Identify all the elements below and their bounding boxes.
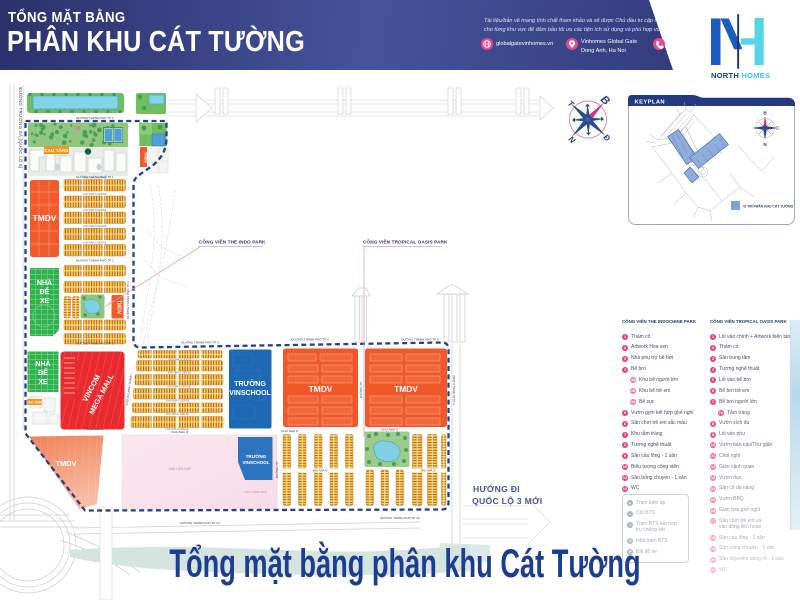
svg-text:ĐƯỜNG THÀNH PHỐ TP 2: ĐƯỜNG THÀNH PHỐ TP 2 (76, 258, 114, 263)
svg-text:TRƯỜNG: TRƯỜNG (234, 379, 266, 388)
svg-text:TMDV: TMDV (394, 384, 418, 394)
svg-text:ĐƯỜNG THÀNH PHỐ TP 2: ĐƯỜNG THÀNH PHỐ TP 2 (76, 341, 114, 346)
svg-text:TMDV: TMDV (56, 459, 77, 468)
svg-text:TMDV: TMDV (116, 300, 122, 315)
svg-text:PHỐ CƯ KINH THÀNH: PHỐ CƯ KINH THÀNH (124, 374, 133, 406)
svg-text:ĐƯỜNG THÀNH PHỐ TP 10: ĐƯỜNG THÀNH PHỐ TP 10 (381, 515, 420, 520)
svg-text:ĐƯỜNG THÀNH PHỐ TP 4: ĐƯỜNG THÀNH PHỐ TP 4 (401, 337, 439, 342)
svg-text:ĐƯỜNG THÀNH PHỐ TP 10: ĐƯỜNG THÀNH PHỐ TP 10 (181, 520, 220, 525)
svg-text:CÔNG VIÊN TROPICAL OASIS PARK: CÔNG VIÊN TROPICAL OASIS PARK (363, 238, 448, 245)
svg-text:KHU NHÀ Ở: KHU NHÀ Ở (172, 429, 189, 434)
svg-text:TMDV: TMDV (144, 152, 149, 164)
svg-text:TMDV: TMDV (33, 213, 57, 223)
svg-text:KHU NHA O LIEN KE: KHU NHA O LIEN KE (168, 386, 191, 389)
svg-text:KHU NHA O LIEN KE: KHU NHA O LIEN KE (168, 372, 191, 375)
svg-text:CÔNG VIÊN THE INDO PARK: CÔNG VIÊN THE INDO PARK (199, 238, 266, 245)
svg-text:KHU NHA O LIEN KE: KHU NHA O LIEN KE (84, 241, 107, 244)
svg-text:NORTH HOMES: NORTH HOMES (711, 71, 770, 80)
svg-text:N: N (566, 135, 577, 146)
svg-text:ĐƯỜNG THÀNH PHỐ TP 1: ĐƯỜNG THÀNH PHỐ TP 1 (76, 115, 114, 120)
svg-text:KHU NHÀ Ở: KHU NHÀ Ở (282, 428, 299, 433)
svg-text:VINSCHOOL: VINSCHOOL (229, 390, 271, 397)
svg-text:NHÀ: NHÀ (37, 278, 52, 287)
svg-text:CAO TẦNG: CAO TẦNG (26, 401, 44, 405)
svg-text:QUỐC LỘ 3 MỚI: QUỐC LỘ 3 MỚI (472, 495, 542, 506)
svg-text:Y LÊ ĐƯỜNG THÀNH: Y LÊ ĐƯỜNG THÀNH (451, 375, 456, 405)
svg-text:KHU NHÀ Ở: KHU NHÀ Ở (382, 427, 399, 432)
svg-text:ĐỂ: ĐỂ (38, 368, 48, 377)
svg-text:KHU NHA O LIEN KE: KHU NHA O LIEN KE (166, 413, 189, 416)
svg-text:KHU NHÀ Ở: KHU NHÀ Ở (87, 426, 104, 431)
svg-text:KHU NHA O LIEN KE: KHU NHA O LIEN KE (84, 193, 107, 196)
svg-text:KHU NHA O LIEN KE: KHU NHA O LIEN KE (167, 400, 190, 403)
svg-text:ĐƯỜNG TP: ĐƯỜNG TP (274, 462, 279, 478)
svg-text:KHU HỖN HỢP: KHU HỖN HỢP (169, 466, 192, 471)
svg-text:XE: XE (38, 379, 48, 386)
svg-text:ĐƯỜNG THÀNH PHỐ TP 1: ĐƯỜNG THÀNH PHỐ TP 1 (76, 174, 114, 179)
svg-text:ĐƯỜNG THÀNH PHỐ TP 4: ĐƯỜNG THÀNH PHỐ TP 4 (291, 337, 329, 342)
svg-text:KHU NHA O LIEN KE: KHU NHA O LIEN KE (84, 209, 107, 212)
svg-text:TMDV: TMDV (309, 384, 333, 394)
svg-text:NHÀ: NHÀ (35, 359, 50, 368)
svg-text:Đ: Đ (601, 133, 612, 144)
svg-text:ĐỂ: ĐỂ (40, 287, 50, 296)
svg-text:KEYPLAN: KEYPLAN (635, 99, 666, 105)
svg-text:VINSCHOOL: VINSCHOOL (242, 460, 270, 465)
svg-text:XE: XE (40, 298, 50, 305)
svg-text:VỊ TRÍ PHÂN KHU CÁT TƯỜNG: VỊ TRÍ PHÂN KHU CÁT TƯỜNG (743, 204, 794, 209)
svg-text:KHU HỖN HỢP: KHU HỖN HỢP (245, 489, 266, 494)
svg-text:KHU NHA O LIEN KE: KHU NHA O LIEN KE (84, 225, 107, 228)
svg-text:HƯỚNG ĐI: HƯỚNG ĐI (473, 483, 520, 494)
svg-text:ĐƯỜNG TRƯỜNG SA (QUỐC LỘ 5): ĐƯỜNG TRƯỜNG SA (QUỐC LỘ 5) (18, 87, 23, 169)
svg-text:ĐƯỜNG THÀNH PHỐ TP 3: ĐƯỜNG THÀNH PHỐ TP 3 (125, 281, 130, 319)
svg-text:ĐƯỜNG TP: ĐƯỜNG TP (358, 382, 363, 398)
svg-text:ĐƯỜNG THÀNH PHỐ TP 4: ĐƯỜNG THÀNH PHỐ TP 4 (181, 340, 219, 345)
svg-text:CAO TẦNG: CAO TẦNG (44, 147, 69, 153)
svg-text:TRƯỜNG: TRƯỜNG (246, 452, 267, 459)
